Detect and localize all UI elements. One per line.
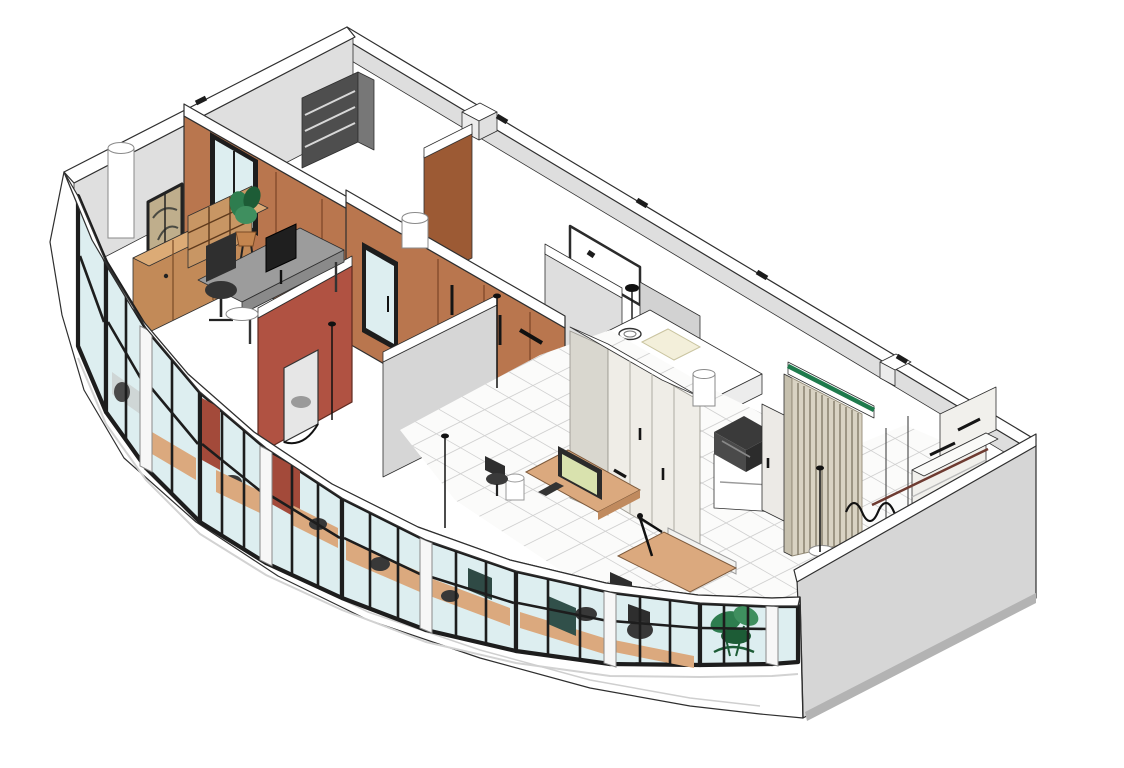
column xyxy=(693,370,715,407)
column xyxy=(108,143,134,239)
rendering-canvas xyxy=(0,0,1124,768)
floorplan-3d-rendering xyxy=(0,0,1124,768)
slat-partition xyxy=(784,362,874,556)
waste-bin xyxy=(506,474,524,500)
column xyxy=(402,213,428,249)
column xyxy=(226,308,258,321)
